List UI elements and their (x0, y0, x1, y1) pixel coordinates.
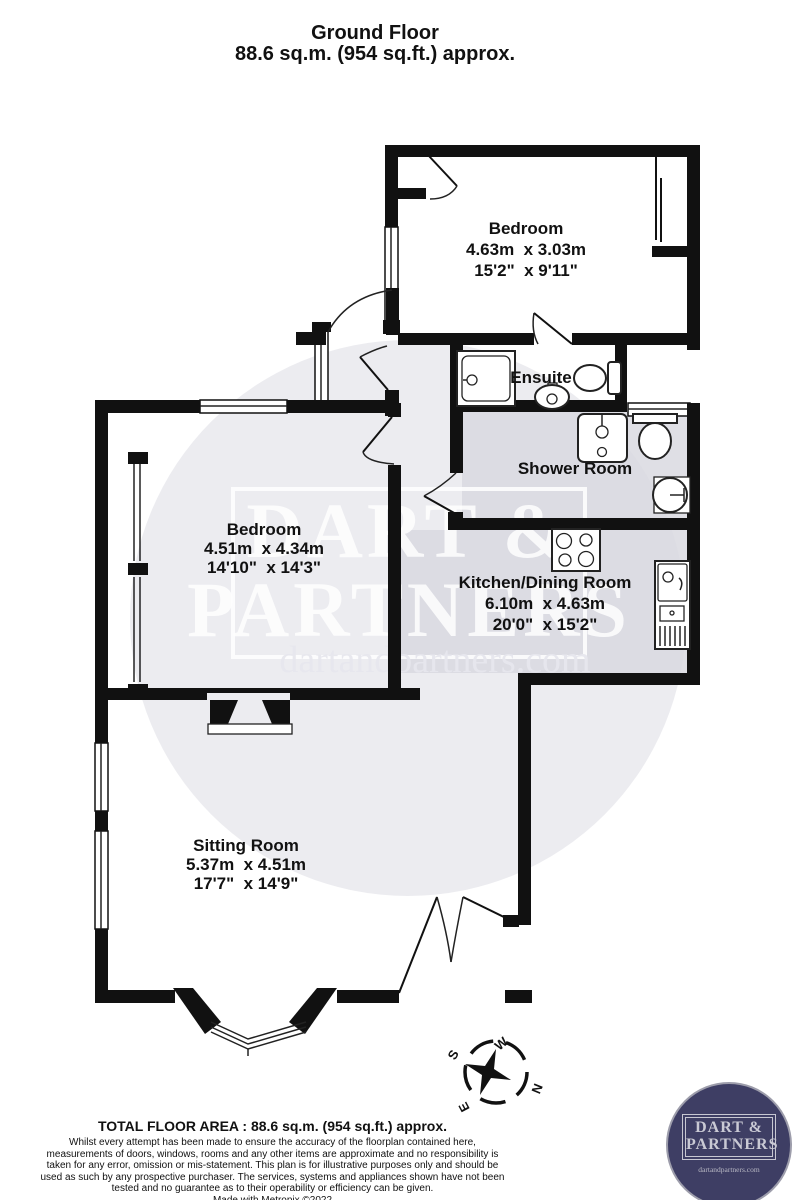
dart-partners-logo: DART & PARTNERS dartandpartners.com (666, 1082, 792, 1200)
sink-icon (578, 414, 627, 462)
compass-star (465, 1049, 511, 1095)
room-label-bedroom-left: Bedroom (227, 520, 302, 539)
shower-cubicle (457, 351, 515, 406)
room-label-kitchen: Kitchen/Dining Room (459, 573, 632, 592)
room-dims-metric: 4.63m x 3.03m (466, 240, 586, 259)
compass-w: W (492, 1033, 512, 1053)
toilet-icon (574, 362, 621, 394)
disclaimer-text: Whilst every attempt has been made to en… (35, 1137, 510, 1195)
room-dims-imperial: 14'10" x 14'3" (207, 558, 321, 577)
room-label-ensuite: Ensuite (510, 368, 571, 387)
hob-icon (552, 529, 600, 571)
door-arc (328, 290, 392, 332)
logo-line2: PARTNERS (686, 1136, 772, 1153)
room-label-sitting-room: Sitting Room (193, 836, 299, 855)
room-dims-imperial: 15'2" x 9'11" (474, 261, 578, 280)
plan-title-line1: Ground Floor (0, 23, 750, 44)
window (200, 400, 287, 413)
bay-wall-left (173, 988, 221, 1034)
plan-title-line2: 88.6 sq.m. (954 sq.ft.) approx. (0, 44, 750, 65)
round-basin-icon (653, 477, 690, 513)
window (95, 743, 108, 811)
logo-line1: DART & (686, 1119, 772, 1136)
room-dims-metric: 6.10m x 4.63m (485, 594, 605, 613)
metropix-credit: Made with Metropix ©2022 (35, 1195, 510, 1200)
kitchen-sink-icon (655, 561, 690, 649)
plan-title: Ground Floor 88.6 sq.m. (954 sq.ft.) app… (0, 23, 750, 65)
bay-wall-right (289, 988, 337, 1034)
logo-url: dartandpartners.com (668, 1165, 790, 1174)
bay-window (211, 1022, 306, 1056)
floorplan-drawing: DART & PARTNERS dartandpartners.com (0, 0, 794, 1200)
room-label-shower-room: Shower Room (518, 459, 632, 478)
window (95, 831, 108, 929)
room-dims-imperial: 17'7" x 14'9" (194, 874, 299, 893)
french-doors (399, 897, 512, 993)
room-dims-metric: 5.37m x 4.51m (186, 855, 306, 874)
plan-footer: TOTAL FLOOR AREA : 88.6 sq.m. (954 sq.ft… (35, 1118, 510, 1200)
compass-s: S (444, 1047, 461, 1062)
open-door-leaf (386, 288, 399, 335)
room-dims-imperial: 20'0" x 15'2" (493, 615, 598, 634)
compass-icon: W S N E (444, 1033, 545, 1114)
total-floor-area: TOTAL FLOOR AREA : 88.6 sq.m. (954 sq.ft… (35, 1118, 510, 1134)
floorplan-page: DART & PARTNERS dartandpartners.com (0, 0, 794, 1200)
logo-frame: DART & PARTNERS (682, 1114, 776, 1160)
compass-e: E (455, 1099, 472, 1114)
room-label-bedroom-top: Bedroom (489, 219, 564, 238)
chimney-lines (656, 152, 661, 242)
compass-n: N (528, 1082, 545, 1096)
room-dims-metric: 4.51m x 4.34m (204, 539, 324, 558)
